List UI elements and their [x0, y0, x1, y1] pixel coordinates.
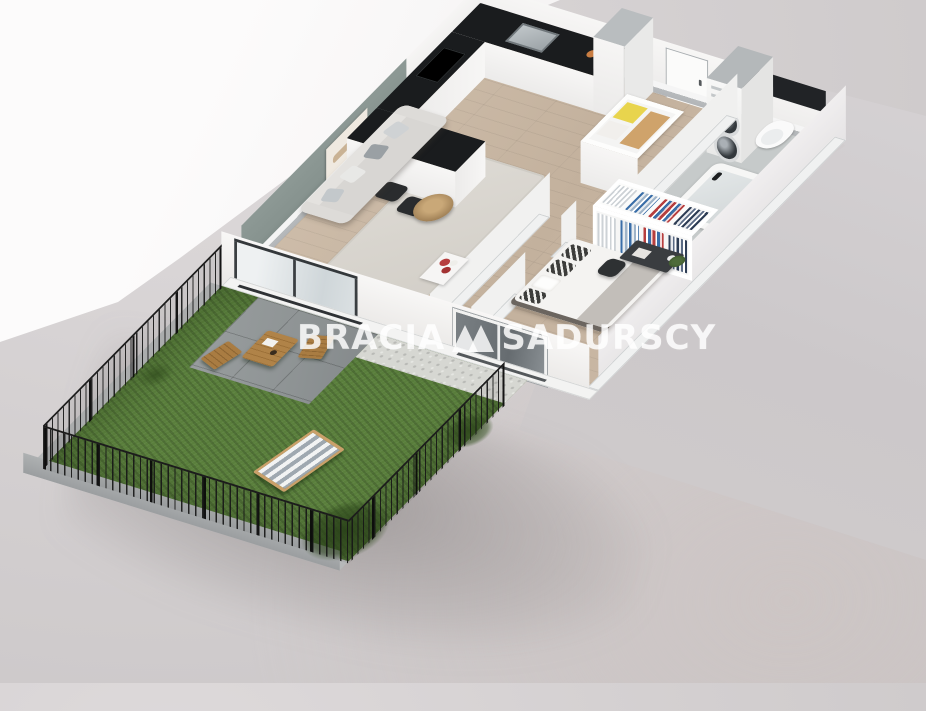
table-papers — [262, 338, 279, 348]
desk-papers — [631, 248, 651, 260]
table-bottle — [268, 349, 278, 355]
red-flowers — [439, 266, 452, 274]
brand-name-left: BRACIA — [297, 318, 445, 358]
pillow-patterned — [545, 259, 577, 277]
brand-name-right: SADURSCY — [501, 318, 716, 358]
double-triangle-logo-icon — [451, 323, 495, 353]
door-handle — [699, 80, 702, 87]
pillow-patterned — [560, 244, 592, 262]
kitchen-sink — [505, 23, 560, 53]
watermark: BRACIA SADURSCY — [297, 318, 716, 358]
